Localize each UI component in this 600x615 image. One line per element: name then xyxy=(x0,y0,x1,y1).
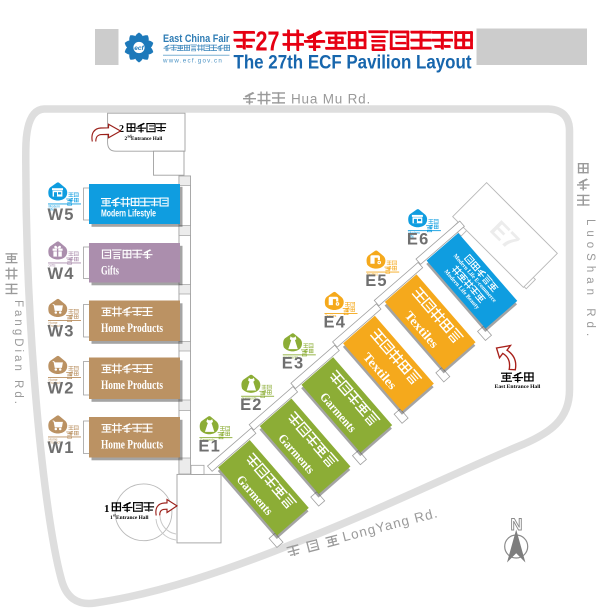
svg-text:Gifts: Gifts xyxy=(101,264,119,278)
svg-text:ecf: ecf xyxy=(134,45,144,52)
svg-text:E5: E5 xyxy=(365,272,388,290)
svg-text:Hua Mu Rd.: Hua Mu Rd. xyxy=(291,92,371,107)
svg-text:W3: W3 xyxy=(48,323,75,341)
svg-text:E6: E6 xyxy=(407,231,430,249)
svg-text:Home Products: Home Products xyxy=(101,321,163,335)
svg-text:FangDian Rd.: FangDian Rd. xyxy=(12,300,24,407)
svg-text:W5: W5 xyxy=(48,206,75,224)
svg-text:The 27th ECF Pavilion Layout: The 27th ECF Pavilion Layout xyxy=(234,51,472,73)
svg-text:1: 1 xyxy=(104,503,110,515)
svg-text:LongYang Rd.: LongYang Rd. xyxy=(341,505,440,544)
svg-text:East China Fair: East China Fair xyxy=(163,33,230,45)
svg-text:2: 2 xyxy=(119,124,124,135)
svg-text:W2: W2 xyxy=(48,380,75,398)
svg-text:Modern Lifestyle: Modern Lifestyle xyxy=(101,209,156,220)
svg-text:Home Products: Home Products xyxy=(101,438,163,452)
svg-text:Home Products: Home Products xyxy=(101,378,163,392)
svg-text:Entrance Hall: Entrance Hall xyxy=(131,136,163,142)
svg-text:Entrance Hall: Entrance Hall xyxy=(116,515,149,521)
svg-text:E3: E3 xyxy=(282,355,305,373)
svg-text:www.ecf.gov.cn: www.ecf.gov.cn xyxy=(162,58,223,65)
svg-text:E1: E1 xyxy=(198,438,221,456)
svg-text:W4: W4 xyxy=(48,265,75,283)
svg-text:E4: E4 xyxy=(324,313,347,331)
svg-text:LuoShan Rd.: LuoShan Rd. xyxy=(584,219,596,341)
svg-text:W1: W1 xyxy=(48,439,75,457)
svg-text:East Entrance Hall: East Entrance Hall xyxy=(495,384,541,390)
svg-text:E2: E2 xyxy=(240,396,263,414)
